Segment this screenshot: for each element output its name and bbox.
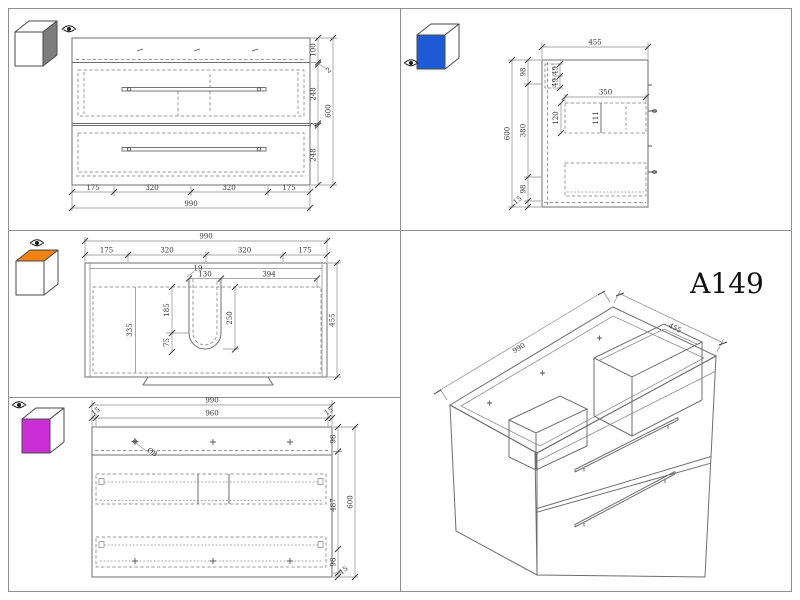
side-view-dimensions: 455 98 380 98 15 600 49 49 350 120 111 <box>504 39 652 211</box>
dim-side-h3: 15 <box>512 195 524 207</box>
dim-top-width-total: 990 <box>199 233 212 241</box>
back-view-dimensions: 990 15 960 15 98 487 98 15 600 <box>89 397 358 581</box>
dim-side-height-total: 600 <box>504 127 512 140</box>
iso-dimensions: 990 455 <box>434 290 727 400</box>
dim-back-h2: 98 <box>330 558 338 567</box>
drawing-sheet: 175 320 320 175 990 100 2 248 2 248 600 <box>0 0 800 600</box>
front-view-panel: 175 320 320 175 990 100 2 248 2 248 600 <box>15 21 337 211</box>
dim-front-h3: 2 <box>310 122 318 126</box>
dim-top-basin-depth: 335 <box>126 323 134 336</box>
dim-side-drawer-depth: 350 <box>599 89 612 97</box>
dim-side-h0: 98 <box>520 68 528 77</box>
eye-icon <box>62 26 76 32</box>
dim-side-depth-total: 455 <box>588 39 601 47</box>
dim-back-width-total: 990 <box>205 397 218 405</box>
view-cube-side <box>417 24 459 69</box>
dim-back-h0: 98 <box>330 435 338 444</box>
dim-front-h4: 248 <box>310 148 318 161</box>
front-view-drawing <box>72 38 310 185</box>
dim-front-h0: 100 <box>310 43 318 56</box>
top-view-drawing <box>85 263 327 385</box>
dim-top-cutout-front: 185 <box>163 303 171 316</box>
dim-top-w0: 175 <box>100 247 113 255</box>
back-view-drawing: Ø8 <box>92 427 332 577</box>
view-cube-front <box>15 21 57 66</box>
dim-side-h1: 380 <box>520 124 528 137</box>
dim-side-drawer-inner: 111 <box>592 111 600 124</box>
dim-top-w1: 320 <box>160 247 173 255</box>
dim-front-w1: 320 <box>145 184 158 192</box>
dim-side-drawer-front: 120 <box>552 111 560 124</box>
dim-side-rail0: 49 <box>552 66 560 75</box>
dim-top-cutout-depth: 250 <box>226 311 234 324</box>
cad-drawing: 175 320 320 175 990 100 2 248 2 248 600 <box>0 0 800 600</box>
view-cube-top <box>16 250 58 295</box>
dim-back-t1: 960 <box>205 410 218 418</box>
dim-back-height-total: 600 <box>347 495 355 508</box>
iso-interior-box-large <box>594 324 702 436</box>
dim-front-h2: 248 <box>310 87 318 100</box>
back-view-panel: Ø8 990 15 960 15 98 487 98 15 600 <box>12 397 358 581</box>
eye-icon <box>404 60 418 66</box>
dim-front-w0: 175 <box>86 184 99 192</box>
dim-back-h3: 15 <box>338 565 350 577</box>
dim-side-h2: 98 <box>520 185 528 194</box>
cube-highlight-face <box>22 419 50 453</box>
iso-drawer-handle-top <box>575 418 678 473</box>
dim-front-width-total: 990 <box>184 200 197 208</box>
eye-icon <box>30 240 44 246</box>
eye-icon <box>12 402 26 408</box>
dim-top-w3: 175 <box>298 247 311 255</box>
iso-drawer-handle-bottom <box>575 472 675 528</box>
iso-view-panel: A149 <box>434 267 764 577</box>
dim-side-rail1: 49 <box>552 78 560 87</box>
dim-front-w3: 175 <box>282 184 295 192</box>
dim-front-w2: 320 <box>222 184 235 192</box>
dim-top-cutout-bottom: 75 <box>163 338 171 347</box>
dim-back-hole: Ø8 <box>146 446 159 458</box>
dim-back-h1: 487 <box>330 498 338 511</box>
dim-top-cutout-to-edge: 394 <box>262 271 276 279</box>
dim-top-cutout-width: 130 <box>198 271 211 279</box>
iso-interior-box-small <box>509 396 587 470</box>
dim-back-t2: 15 <box>323 406 335 418</box>
dim-front-h1: 2 <box>324 66 333 75</box>
top-view-dimensions: 990 175 320 320 175 455 19 130 394 185 7… <box>82 233 341 381</box>
model-label: A149 <box>689 267 764 300</box>
view-cube-back <box>22 408 64 453</box>
side-view-panel: 455 98 380 98 15 600 49 49 350 120 111 <box>404 24 657 210</box>
cube-highlight-face <box>417 35 445 69</box>
dim-iso-width: 990 <box>511 341 527 355</box>
dim-top-depth-total: 455 <box>329 313 337 326</box>
dim-front-height-total: 600 <box>325 104 333 117</box>
dim-top-w2: 320 <box>238 247 251 255</box>
iso-cabinet <box>450 307 716 577</box>
top-view-panel: 990 175 320 320 175 455 19 130 394 185 7… <box>16 233 341 386</box>
dim-iso-depth: 455 <box>667 322 683 335</box>
